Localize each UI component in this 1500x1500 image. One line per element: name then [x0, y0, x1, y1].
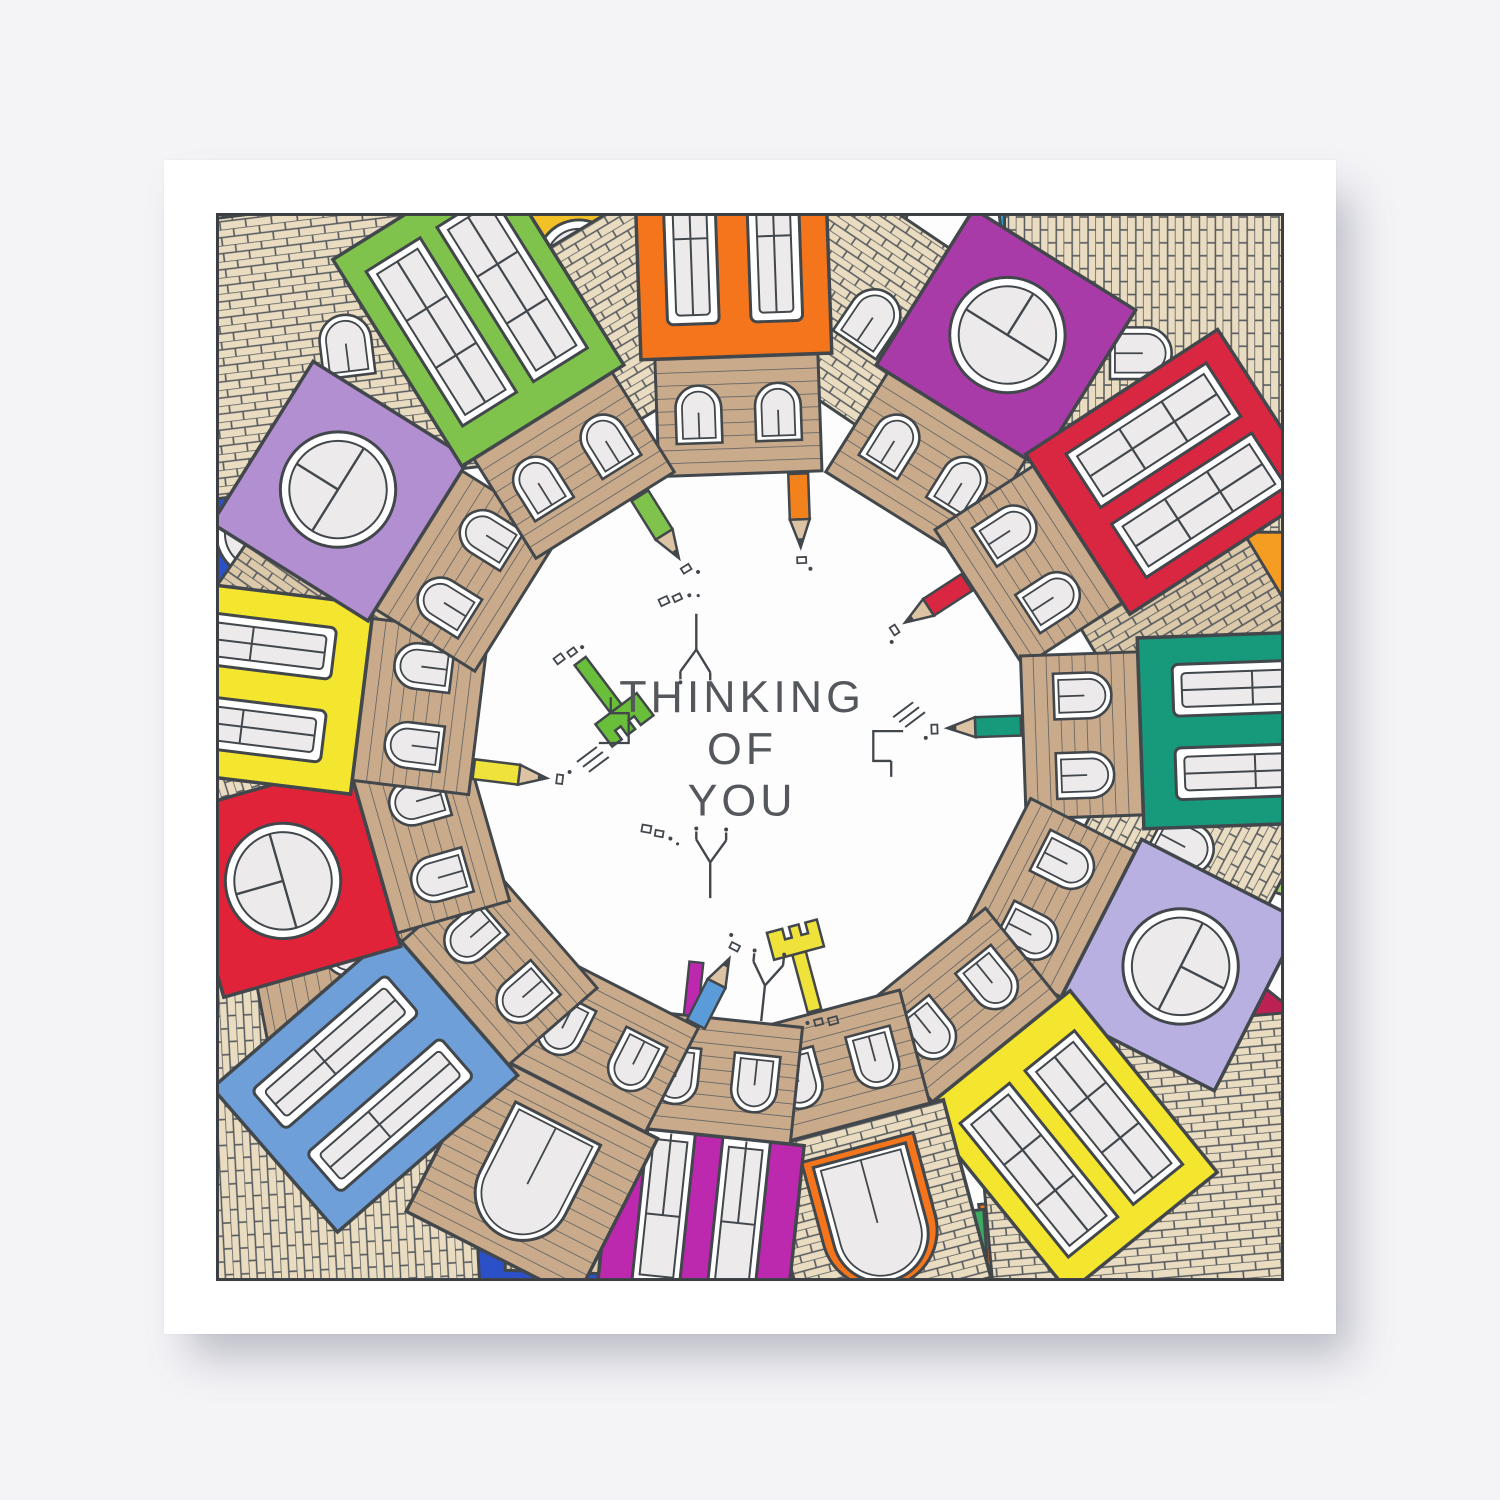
message-line-3: YOU — [688, 776, 797, 826]
photo-backdrop: THINKING OF YOU — [0, 0, 1500, 1500]
houses-circle-illustration: THINKING OF YOU — [211, 210, 1289, 1284]
greeting-card: THINKING OF YOU — [164, 160, 1336, 1334]
message-line-1: THINKING — [619, 672, 865, 722]
illustration: THINKING OF YOU — [211, 210, 1289, 1284]
message-line-2: OF — [707, 724, 777, 774]
